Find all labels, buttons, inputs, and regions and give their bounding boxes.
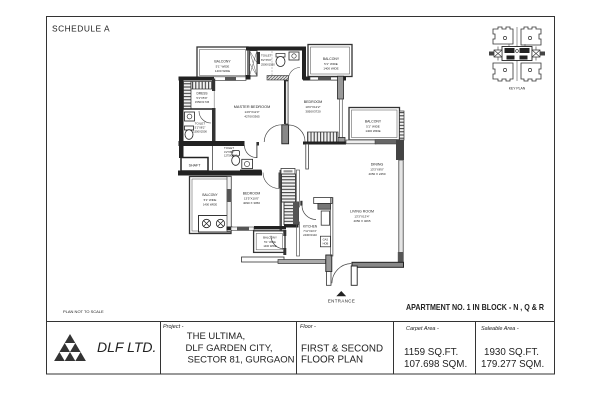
svg-text:8'2"X5'0": 8'2"X5'0" bbox=[261, 58, 272, 62]
svg-text:1159 SQ.FT.: 1159 SQ.FT. bbox=[404, 347, 458, 358]
svg-text:KEY PLAN: KEY PLAN bbox=[509, 87, 526, 91]
svg-text:ENTRANCE: ENTRANCE bbox=[328, 298, 355, 303]
svg-text:1400 WIDE: 1400 WIDE bbox=[215, 69, 230, 73]
svg-text:Saleable Area -: Saleable Area - bbox=[481, 326, 519, 332]
svg-text:10'0"X12'2": 10'0"X12'2" bbox=[305, 105, 320, 109]
svg-text:PLAN NOT TO SCALE: PLAN NOT TO SCALE bbox=[63, 309, 104, 314]
svg-text:BEDROOM: BEDROOM bbox=[243, 192, 261, 196]
svg-text:1400 WIDE: 1400 WIDE bbox=[203, 203, 217, 207]
svg-text:1550X2500: 1550X2500 bbox=[193, 130, 207, 134]
svg-text:4270X3365: 4270X3365 bbox=[244, 115, 260, 119]
svg-text:13'5"X10'0": 13'5"X10'0" bbox=[244, 197, 259, 201]
svg-text:GAS: GAS bbox=[323, 238, 329, 242]
svg-text:THE ULTIMA,: THE ULTIMA, bbox=[187, 331, 245, 342]
svg-text:BALCONY: BALCONY bbox=[263, 236, 277, 240]
svg-text:LIVING ROOM: LIVING ROOM bbox=[350, 210, 374, 214]
svg-text:5'1" WIDE: 5'1" WIDE bbox=[366, 125, 380, 129]
svg-text:MASTER BEDROOM: MASTER BEDROOM bbox=[234, 105, 271, 109]
svg-text:Project -: Project - bbox=[163, 324, 184, 330]
svg-text:1930 SQ.FT.: 1930 SQ.FT. bbox=[484, 347, 539, 358]
svg-text:BALCONY: BALCONY bbox=[365, 120, 382, 124]
svg-text:14'0"X11'0": 14'0"X11'0" bbox=[244, 110, 259, 114]
svg-text:BALCONY: BALCONY bbox=[202, 193, 218, 197]
svg-text:TOILET: TOILET bbox=[224, 146, 234, 150]
svg-text:KITCHEN: KITCHEN bbox=[303, 225, 318, 229]
svg-text:3050X3720: 3050X3720 bbox=[305, 110, 321, 114]
svg-text:SCHEDULE A: SCHEDULE A bbox=[52, 24, 110, 34]
svg-text:107.698 SQM.: 107.698 SQM. bbox=[404, 359, 467, 370]
svg-text:1400 WIDE: 1400 WIDE bbox=[365, 129, 380, 133]
svg-text:1275X2500: 1275X2500 bbox=[224, 153, 238, 157]
svg-text:Carpet Area -: Carpet Area - bbox=[406, 326, 439, 332]
svg-text:2500X1550: 2500X1550 bbox=[261, 63, 275, 67]
svg-text:APARTMENT NO. 1 IN BLOCK - N: APARTMENT NO. 1 IN BLOCK - N , Q & R bbox=[406, 303, 544, 312]
svg-text:TOILET: TOILET bbox=[195, 122, 206, 126]
svg-text:13'3"X13'4": 13'3"X13'4" bbox=[354, 215, 369, 219]
svg-text:TOILET: TOILET bbox=[261, 54, 272, 58]
svg-text:SECTOR 81, GURGAON: SECTOR 81, GURGAON bbox=[188, 355, 295, 366]
svg-text:FIRST & SECOND: FIRST & SECOND bbox=[301, 344, 383, 355]
svg-text:DLF LTD.: DLF LTD. bbox=[97, 339, 156, 355]
svg-text:FLOOR PLAN: FLOOR PLAN bbox=[301, 355, 363, 366]
svg-text:BALCONY: BALCONY bbox=[323, 57, 340, 61]
svg-text:2430X3140: 2430X3140 bbox=[303, 233, 317, 237]
svg-text:5'1"X8'2": 5'1"X8'2" bbox=[195, 126, 206, 130]
svg-text:SHAFT: SHAFT bbox=[189, 164, 202, 168]
svg-text:5'1" WIDE: 5'1" WIDE bbox=[216, 65, 230, 69]
svg-text:Floor -: Floor - bbox=[300, 324, 316, 330]
svg-text:DINING: DINING bbox=[371, 163, 384, 167]
svg-text:4050 X 4065: 4050 X 4065 bbox=[353, 219, 370, 223]
svg-text:1550X1745: 1550X1745 bbox=[195, 100, 210, 104]
svg-text:5'1" WIDE: 5'1" WIDE bbox=[324, 62, 338, 66]
svg-text:5'1" WIDE: 5'1" WIDE bbox=[204, 198, 217, 202]
svg-text:5'1" WIDE: 5'1" WIDE bbox=[264, 240, 276, 244]
svg-text:13'3"X8'0": 13'3"X8'0" bbox=[370, 168, 384, 172]
svg-text:4050 X 2450: 4050 X 2450 bbox=[368, 172, 385, 176]
svg-text:1400 WIDE: 1400 WIDE bbox=[323, 67, 338, 71]
svg-text:BALCONY: BALCONY bbox=[214, 60, 231, 64]
svg-text:179.277 SQM.: 179.277 SQM. bbox=[481, 359, 544, 370]
svg-text:7'11"X10'4": 7'11"X10'4" bbox=[303, 229, 317, 233]
svg-text:DLF GARDEN CITY,: DLF GARDEN CITY, bbox=[186, 343, 273, 354]
svg-text:BEDROOM: BEDROOM bbox=[304, 100, 323, 104]
svg-text:4090 X 3050: 4090 X 3050 bbox=[243, 201, 260, 205]
svg-text:HOB: HOB bbox=[323, 242, 329, 246]
svg-text:4'2"X8'2": 4'2"X8'2" bbox=[224, 150, 234, 154]
